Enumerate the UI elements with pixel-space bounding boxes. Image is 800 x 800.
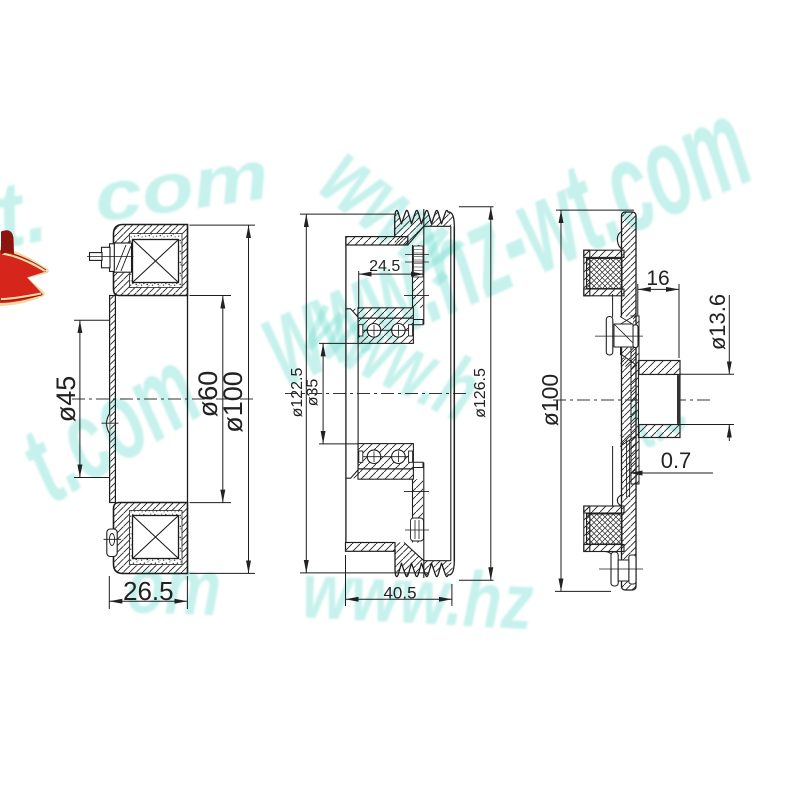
svg-text:ø35: ø35	[305, 379, 322, 407]
svg-text:ø100: ø100	[537, 374, 563, 426]
svg-text:ø122.5: ø122.5	[289, 367, 306, 417]
svg-text:ø126.5: ø126.5	[472, 368, 489, 418]
svg-text:24.5: 24.5	[369, 258, 400, 275]
svg-text:com: com	[89, 135, 273, 237]
svg-text:ø45: ø45	[51, 376, 81, 423]
svg-text:0.7: 0.7	[661, 448, 692, 473]
svg-text:40.5: 40.5	[383, 584, 416, 603]
svg-text:16: 16	[646, 267, 669, 290]
svg-text:ø13.6: ø13.6	[705, 294, 730, 350]
svg-text:26.5: 26.5	[123, 576, 174, 606]
svg-text:ø100: ø100	[218, 371, 248, 433]
